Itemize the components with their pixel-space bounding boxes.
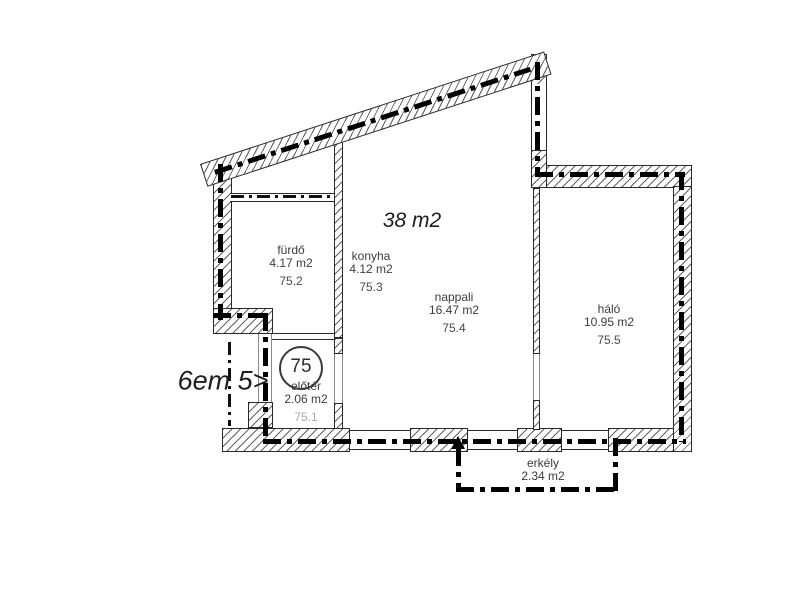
balcony-arrow-icon [451, 436, 465, 449]
room-code-bedroom: 75.5 [584, 334, 634, 347]
axis-right-wall [679, 172, 684, 442]
balcony-edge-bottom [456, 487, 619, 492]
room-area-livingroom: 16.47 m2 [429, 304, 479, 317]
room-area-bathroom: 4.17 m2 [269, 257, 312, 270]
wall-bedroom-left-lower [533, 400, 540, 430]
room-area-hall: 2.06 m2 [284, 393, 327, 406]
door-hall-living [334, 354, 343, 403]
room-code-kitchen: 75.3 [349, 281, 392, 294]
room-code-livingroom: 75.4 [429, 322, 479, 335]
room-area-kitchen: 4.12 m2 [349, 263, 392, 276]
balcony-edge-left [456, 448, 461, 490]
room-label-bathroom: fürdő 4.17 m2 75.2 [269, 244, 312, 288]
room-area-bedroom: 10.95 m2 [584, 316, 634, 329]
door-hall-bathroom [272, 333, 334, 340]
axis-left-wall [218, 164, 223, 320]
wall-entry-step [248, 402, 273, 428]
floor-plan: 38 m2 6em 5> 75 fürdő 4.17 m2 75.2 konyh… [0, 0, 800, 600]
room-label-bedroom: háló 10.95 m2 75.5 [584, 303, 634, 347]
floor-unit-note: 6em 5> [178, 366, 269, 397]
axis-bottom-wall [263, 439, 686, 444]
door-bedroom [533, 354, 540, 400]
room-label-hall: előtér 2.06 m2 75.1 [284, 380, 327, 424]
room-label-kitchen: konyha 4.12 m2 75.3 [349, 250, 392, 294]
total-area-label: 38 m2 [383, 209, 441, 233]
axis-bathroom-top [231, 195, 333, 198]
room-label-balcony: erkély 2.34 m2 [521, 457, 564, 483]
wall-hall-right-upper [334, 338, 343, 354]
axis-topright-vertical [535, 62, 540, 176]
room-code-hall: 75.1 [284, 411, 327, 424]
wall-bathroom-kitchen-divider [334, 128, 343, 338]
room-label-livingroom: nappali 16.47 m2 75.4 [429, 291, 479, 335]
wall-bedroom-left-upper [533, 188, 540, 354]
room-code-bathroom: 75.2 [269, 275, 312, 288]
balcony-edge-right [613, 438, 618, 493]
room-area-balcony: 2.34 m2 [521, 470, 564, 483]
axis-diagonal [214, 67, 531, 175]
axis-bedroom-top [535, 172, 685, 177]
